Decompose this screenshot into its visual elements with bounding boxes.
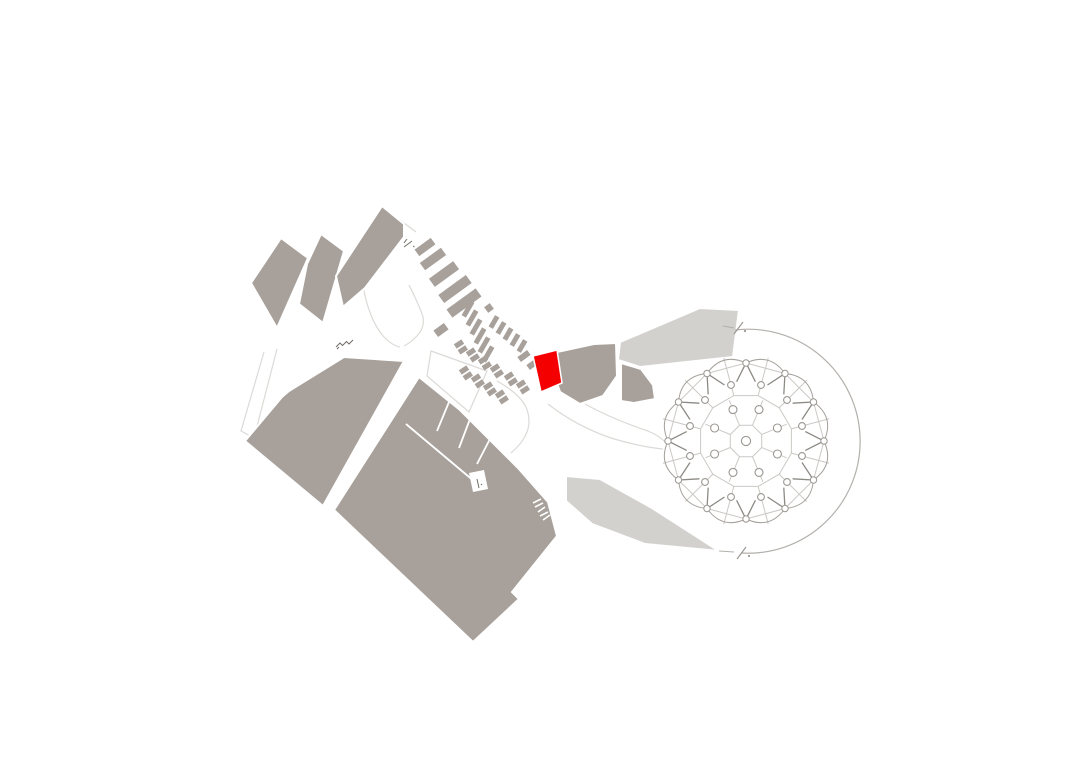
dome-web-spoke <box>758 358 768 396</box>
dome-node-ring <box>728 382 735 389</box>
stairs-icon <box>336 340 353 349</box>
dome-spike <box>679 463 700 481</box>
dome-node-ring <box>799 423 806 430</box>
dome-vertex-knob <box>810 477 816 483</box>
dome-node-ring <box>687 423 694 430</box>
dome-node-ring <box>799 453 806 460</box>
dome-web-spoke <box>791 419 829 429</box>
shop-row-mid-unit <box>496 321 507 335</box>
dome-web-spoke <box>791 453 829 463</box>
dome-vertex-knob <box>704 370 710 376</box>
dome-node-ring <box>784 479 791 486</box>
dome-node-ring <box>773 424 781 432</box>
promenade-funnel-left <box>363 286 400 347</box>
shop-row-mid-unit <box>510 333 521 347</box>
dome-node-ring <box>758 382 765 389</box>
dome-web-spoke <box>663 419 701 429</box>
dome-vertex-knob <box>821 438 827 444</box>
dome-vertex-knob <box>743 360 749 366</box>
dome-node-ring <box>728 494 735 501</box>
dome-web-spoke <box>663 453 701 463</box>
dome-node-ring <box>702 479 709 486</box>
kiosk-single-unit <box>484 303 494 313</box>
site-plan-page <box>0 0 1080 764</box>
dome-vertex-knob <box>665 438 671 444</box>
dome-spike <box>707 374 725 395</box>
dome-vertex-knob <box>782 370 788 376</box>
terrace-south <box>566 476 719 551</box>
dome-node-ring <box>687 453 694 460</box>
dome-node-ring <box>711 424 719 432</box>
dome-vertex-knob <box>675 399 681 405</box>
dome-web-spoke <box>724 486 734 524</box>
dome-pavilion <box>663 358 829 524</box>
shop-row-north-unit <box>429 261 459 287</box>
dome-approach-lower <box>548 404 663 449</box>
promenade-funnel-right <box>404 285 423 346</box>
block-northwest-1 <box>251 238 308 328</box>
dome-web-spoke <box>724 358 734 396</box>
dome-web-spoke <box>758 486 768 524</box>
dome-spike <box>793 402 814 420</box>
block-bend-east <box>621 363 655 403</box>
shop-row-mid-unit <box>517 339 528 353</box>
dome-spike <box>707 488 725 509</box>
terrace-north <box>618 308 739 367</box>
dome-node-ring <box>711 450 719 458</box>
kiosk-single-unit <box>433 323 448 337</box>
dome-node-ring <box>702 397 709 404</box>
dome-vertex-knob <box>743 516 749 522</box>
dome-spike <box>768 488 786 509</box>
dome-node-ring <box>755 468 763 476</box>
dome-node-ring <box>773 450 781 458</box>
dome-center-ring <box>741 436 750 445</box>
dome-spike <box>793 463 814 481</box>
site-plan-drawing <box>0 0 1080 764</box>
dome-node-ring <box>729 406 737 414</box>
dome-spike <box>679 402 700 420</box>
entrance-mark-icon <box>404 239 415 247</box>
dome-vertex-knob <box>782 505 788 511</box>
break-mark-north-dot <box>744 330 746 332</box>
dome-vertex-knob <box>675 477 681 483</box>
block-north <box>336 206 404 307</box>
dome-node-ring <box>758 494 765 501</box>
shop-row-mid <box>489 315 528 353</box>
dome-node-ring <box>784 397 791 404</box>
dome-node-ring <box>729 468 737 476</box>
break-mark-south-dash <box>719 551 734 552</box>
dome-approach-upper <box>585 404 666 443</box>
dome-vertex-knob <box>810 399 816 405</box>
shop-row-north-unit <box>415 238 436 256</box>
dome-vertex-knob <box>704 505 710 511</box>
dome-node-ring <box>755 406 763 414</box>
break-mark-south-dot <box>748 555 750 557</box>
dome-spike <box>768 374 786 395</box>
shop-row-mid-unit <box>489 315 500 329</box>
ring-walkway <box>735 329 860 553</box>
shop-row-mid-unit <box>503 327 514 341</box>
block-bend-west <box>553 343 617 404</box>
